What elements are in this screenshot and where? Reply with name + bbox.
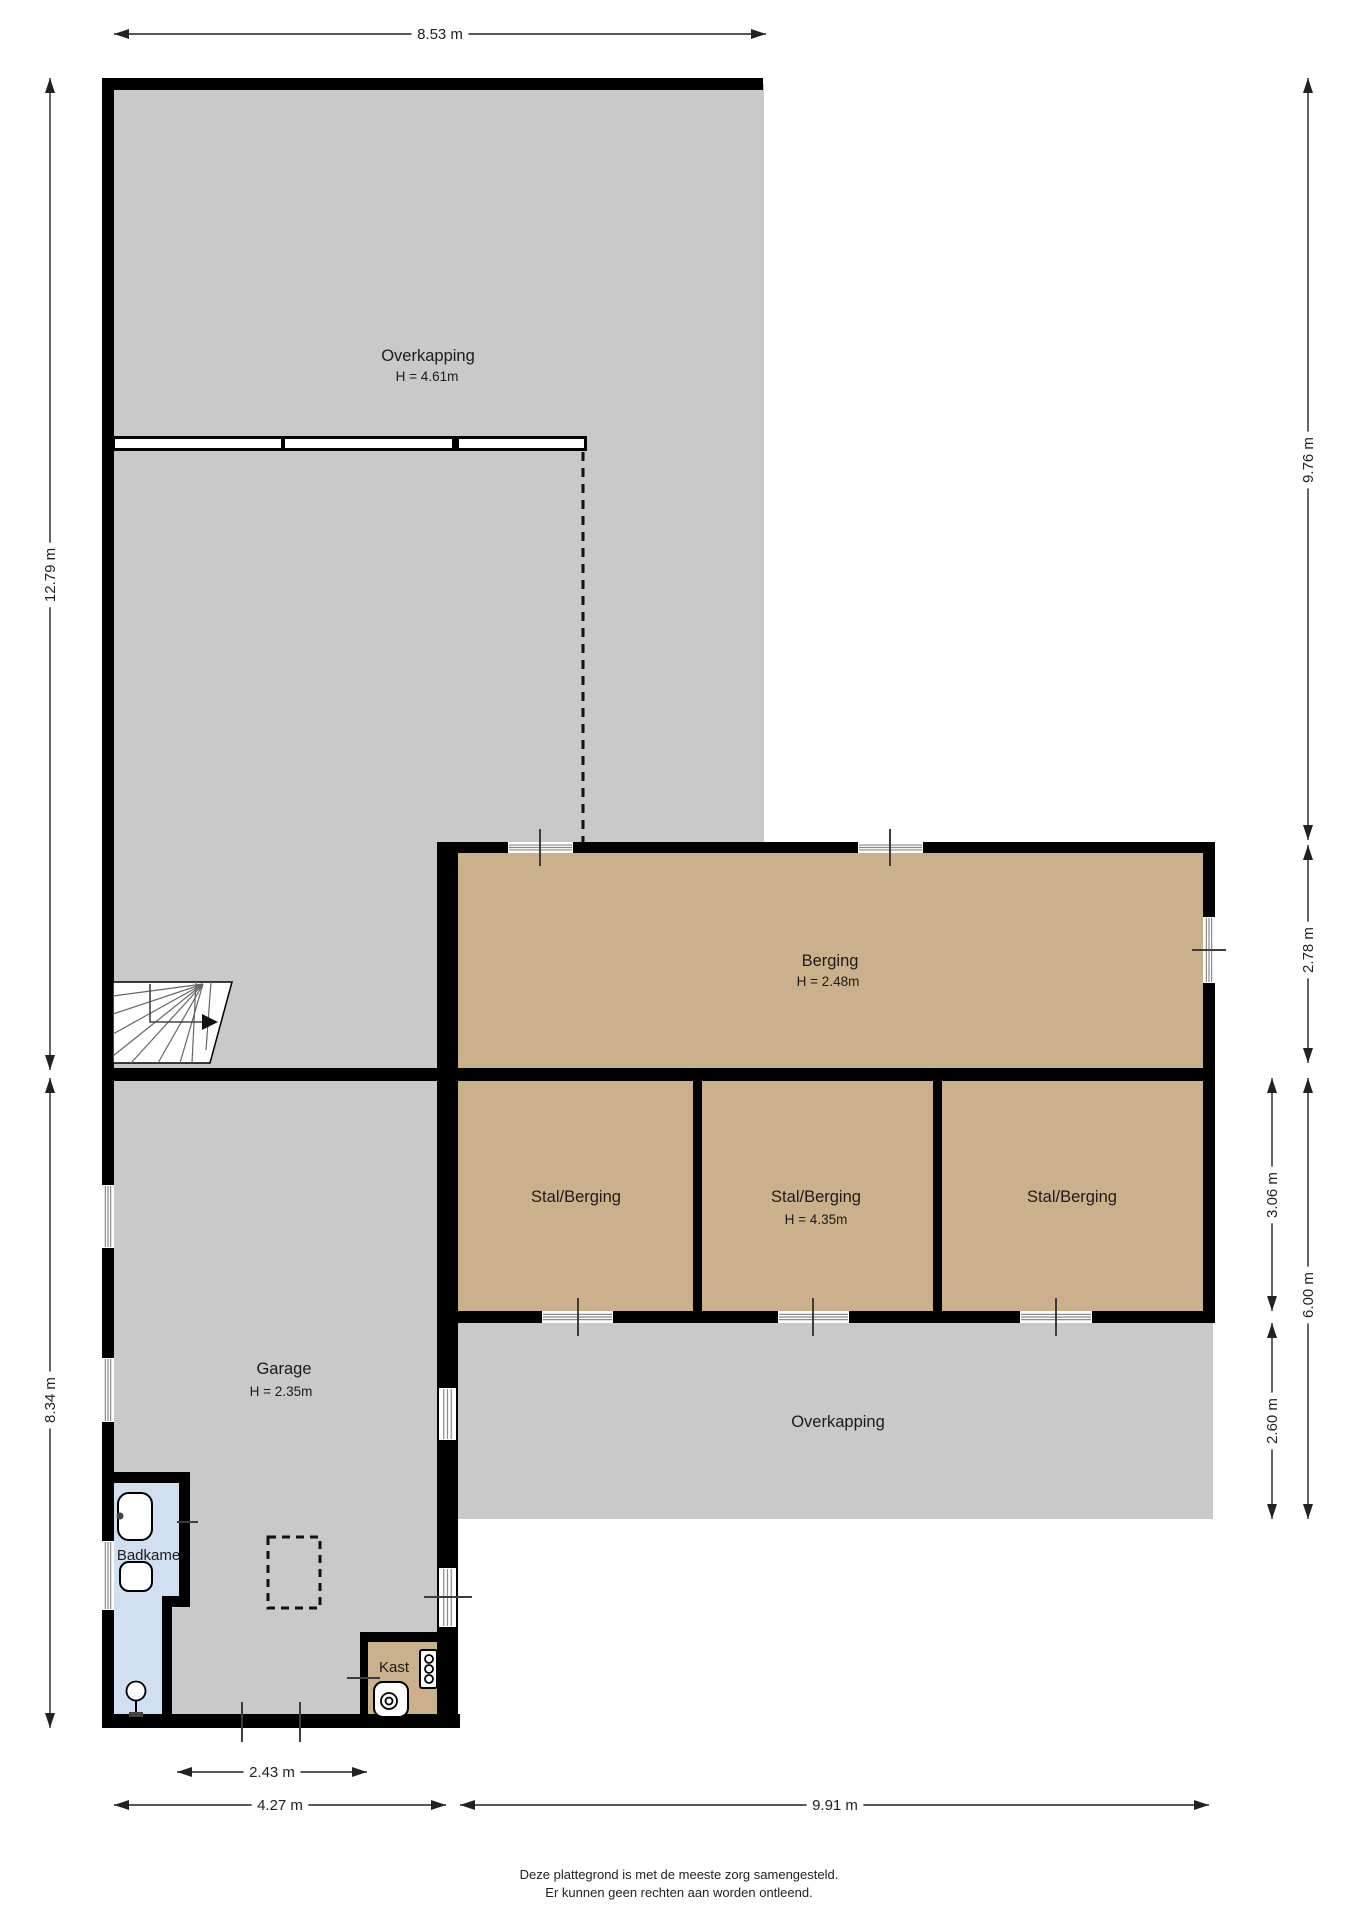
dimension-9-91-label: 9.91 m xyxy=(812,1797,858,1814)
dimension-4-27-label: 4.27 m xyxy=(257,1797,303,1814)
dimension-12-79-arrow-start-icon xyxy=(45,78,55,93)
dimension-2-60-label-group: 2.60 m xyxy=(1263,1393,1281,1450)
room-height-label-stal-berging-2: H = 4.35m xyxy=(785,1212,848,1227)
wall-kast-left xyxy=(360,1642,368,1717)
toilet xyxy=(120,1562,152,1591)
dimension-9-91-label-group: 9.91 m xyxy=(807,1796,864,1814)
dimension-4-27-label-group: 4.27 m xyxy=(252,1796,309,1814)
dimension-8-53-arrow-start-icon xyxy=(114,29,129,39)
wall-badkamer-right-upper xyxy=(179,1483,190,1600)
dimension-6-00-arrow-start-icon xyxy=(1303,1078,1313,1093)
dimension-2-78-arrow-start-icon xyxy=(1303,845,1313,860)
dimension-8-34-arrow-end-icon xyxy=(45,1713,55,1728)
dimension-2-78-arrow-end-icon xyxy=(1303,1048,1313,1063)
dimension-6-00-arrow-end-icon xyxy=(1303,1504,1313,1519)
room-label-stal-berging-2: Stal/Berging xyxy=(771,1188,861,1206)
room-height-label-overkapping-top: H = 4.61m xyxy=(396,369,459,384)
dimension-2-78-label: 2.78 m xyxy=(1300,927,1317,973)
dimension-12-79-arrow-end-icon xyxy=(45,1055,55,1070)
room-label-overkapping-top: Overkapping xyxy=(381,347,475,365)
dimension-9-76-arrow-start-icon xyxy=(1303,78,1313,93)
dimension-12-79-label: 12.79 m xyxy=(42,548,59,602)
room-label-badkamer: Badkamer xyxy=(117,1547,185,1564)
boiler-ring-inner xyxy=(386,1698,393,1705)
dimension-9-76-label-group: 9.76 m xyxy=(1299,432,1317,489)
wall-kast-top xyxy=(360,1632,437,1642)
room-label-overkapping-bottom: Overkapping xyxy=(791,1413,885,1431)
wall-middle xyxy=(102,1068,1215,1081)
floor-plan-page: OverkappingH = 4.61mBergingH = 2.48mStal… xyxy=(0,0,1358,1920)
dimension-2-43-label-group: 2.43 m xyxy=(244,1763,301,1781)
window-band-overkapping-segment-1 xyxy=(115,439,281,448)
floor-plan-svg: OverkappingH = 4.61mBergingH = 2.48mStal… xyxy=(0,0,1358,1920)
dimension-9-91-arrow-start-icon xyxy=(460,1800,475,1810)
dimension-2-60-arrow-end-icon xyxy=(1267,1504,1277,1519)
dimension-3-06-arrow-start-icon xyxy=(1267,1078,1277,1093)
dimension-8-34-arrow-start-icon xyxy=(45,1078,55,1093)
wall-top xyxy=(102,78,763,90)
dimension-8-53-arrow-end-icon xyxy=(751,29,766,39)
window-band-overkapping-segment-3 xyxy=(459,439,584,448)
dimension-3-06-arrow-end-icon xyxy=(1267,1296,1277,1311)
washer-knob-2 xyxy=(425,1665,433,1673)
wall-badkamer-top xyxy=(112,1472,190,1483)
dimension-3-06-label-group: 3.06 m xyxy=(1263,1167,1281,1224)
dimension-9-76-label: 9.76 m xyxy=(1300,437,1317,483)
dimension-9-76-arrow-end-icon xyxy=(1303,825,1313,840)
wall-badkamer-right-lower xyxy=(162,1607,172,1717)
sink-faucet xyxy=(117,1513,124,1520)
dimension-2-43-arrow-start-icon xyxy=(177,1767,192,1777)
dimension-4-27-arrow-end-icon xyxy=(431,1800,446,1810)
room-label-berging: Berging xyxy=(802,952,859,970)
dimension-2-43-arrow-end-icon xyxy=(352,1767,367,1777)
dimension-12-79-label-group: 12.79 m xyxy=(41,543,59,608)
dimension-4-27-arrow-start-icon xyxy=(114,1800,129,1810)
dimension-9-91-arrow-end-icon xyxy=(1194,1800,1209,1810)
dimension-6-00-label-group: 6.00 m xyxy=(1299,1267,1317,1324)
wall-bottom xyxy=(102,1714,460,1728)
dimension-8-53-label-group: 8.53 m xyxy=(412,25,469,43)
wall-right xyxy=(1203,842,1215,1323)
dimension-8-34-label: 8.34 m xyxy=(42,1377,59,1423)
shower-base xyxy=(129,1712,143,1717)
footer-disclaimer-line-1: Deze plattegrond is met de meeste zorg s… xyxy=(0,1867,1358,1882)
wall-stal-divider-1 xyxy=(693,1081,702,1323)
wall-badkamer-jog xyxy=(162,1596,190,1607)
room-label-stal-berging-1: Stal/Berging xyxy=(531,1188,621,1206)
floor-overkapping-top xyxy=(108,84,764,846)
room-label-kast: Kast xyxy=(379,1659,410,1676)
washer-knob-1 xyxy=(425,1655,433,1663)
dimension-2-60-arrow-start-icon xyxy=(1267,1323,1277,1338)
room-label-garage: Garage xyxy=(256,1360,311,1378)
dimension-8-53-label: 8.53 m xyxy=(417,26,463,43)
dimension-3-06-label: 3.06 m xyxy=(1264,1172,1281,1218)
dimension-2-78-label-group: 2.78 m xyxy=(1299,922,1317,979)
dimension-6-00-label: 6.00 m xyxy=(1300,1272,1317,1318)
dimension-2-60-label: 2.60 m xyxy=(1264,1398,1281,1444)
wall-stal-divider-2 xyxy=(933,1081,942,1323)
footer-disclaimer-line-2: Er kunnen geen rechten aan worden ontlee… xyxy=(0,1885,1358,1900)
room-label-stal-berging-3: Stal/Berging xyxy=(1027,1188,1117,1206)
room-height-label-garage: H = 2.35m xyxy=(250,1384,313,1399)
shower-head xyxy=(127,1682,146,1701)
dimension-2-43-label: 2.43 m xyxy=(249,1764,295,1781)
room-height-label-berging: H = 2.48m xyxy=(797,974,860,989)
dimension-8-34-label-group: 8.34 m xyxy=(41,1372,59,1429)
window-band-overkapping-segment-2 xyxy=(285,439,452,448)
washer-knob-3 xyxy=(425,1675,433,1683)
